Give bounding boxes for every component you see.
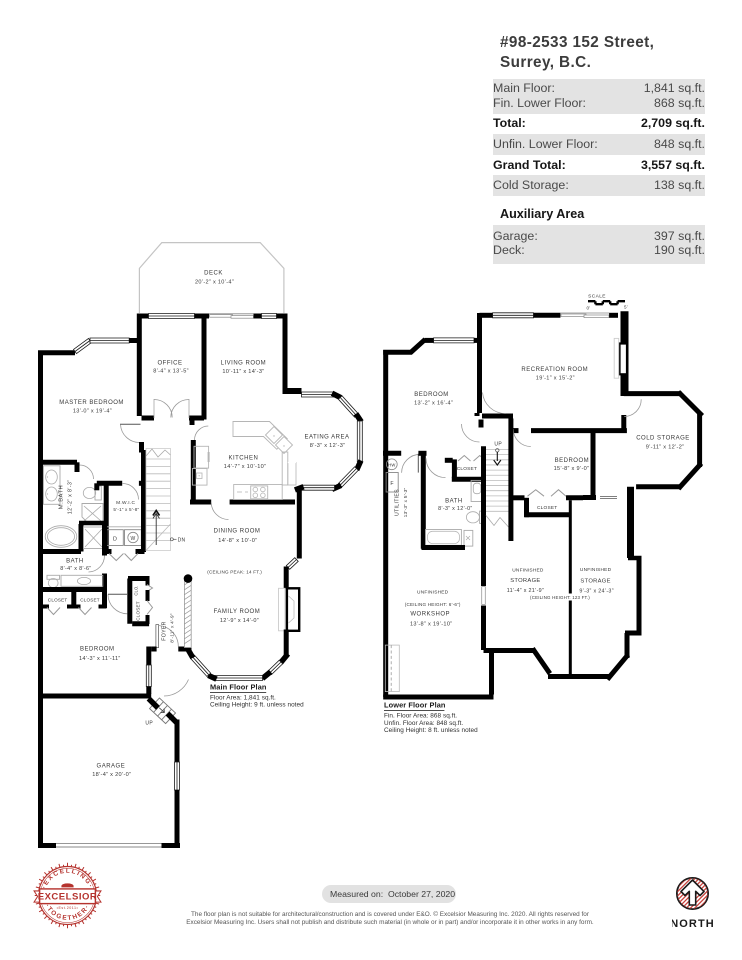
svg-text:(CEILING PEAK: 14 FT.): (CEILING PEAK: 14 FT.) [207,570,262,575]
svg-text:BEDROOM: BEDROOM [80,647,115,653]
svg-text:STORAGE: STORAGE [580,578,610,584]
svg-text:DECK: DECK [204,271,223,277]
svg-text:BATH: BATH [445,499,463,505]
svg-text:NORTH: NORTH [672,918,713,930]
svg-text:BEDROOM: BEDROOM [414,392,449,398]
svg-text:UNFINISHED: UNFINISHED [580,567,612,573]
svg-text:14’-7” x 10’-10”: 14’-7” x 10’-10” [224,464,266,470]
svg-text:20’-2” x 10’-4”: 20’-2” x 10’-4” [195,280,234,286]
svg-text:UP: UP [494,441,502,447]
svg-text:Fin. Floor Area: 868 sq.ft.: Fin. Floor Area: 868 sq.ft. [384,713,457,720]
svg-text:RECREATION ROOM: RECREATION ROOM [521,367,588,373]
svg-text:CLO.: CLO. [134,585,139,595]
svg-text:5’-1” x 5’-8”: 5’-1” x 5’-8” [113,507,139,512]
svg-text:10’-11” x 14’-3”: 10’-11” x 14’-3” [222,369,264,375]
svg-text:13’-0” x 19’-4”: 13’-0” x 19’-4” [73,408,112,414]
svg-text:CLOSET: CLOSET [457,466,477,472]
svg-text:UNFINISHED: UNFINISHED [512,567,544,573]
svg-text:COLD STORAGE: COLD STORAGE [636,436,690,442]
svg-text:M.BATH: M.BATH [59,485,65,509]
svg-text:12’-2” x 8’-3”: 12’-2” x 8’-3” [68,480,74,514]
svg-text:KITCHEN: KITCHEN [228,456,258,462]
svg-text:Ceiling Height: 8 ft. unless n: Ceiling Height: 8 ft. unless noted [384,727,478,734]
svg-text:SCALE: SCALE [588,294,606,300]
svg-text:Unfin. Floor Area: 848 sq.ft.: Unfin. Floor Area: 848 sq.ft. [384,720,463,727]
svg-text:WORKSHOP: WORKSHOP [410,612,450,618]
svg-text:8’-3” x 12’-3”: 8’-3” x 12’-3” [310,443,346,449]
svg-text:CLOSET: CLOSET [80,597,100,602]
svg-text:12’-9” x 14’-0”: 12’-9” x 14’-0” [220,618,259,624]
svg-text:14’-3” x 11’-11”: 14’-3” x 11’-11” [79,656,121,662]
svg-text:CLOSET: CLOSET [537,505,557,511]
svg-text:Lower Floor Plan: Lower Floor Plan [384,701,446,710]
svg-text:5’: 5’ [624,305,628,310]
svg-text:EXCELSIOR: EXCELSIOR [38,892,98,903]
svg-text:19’-1” x 15’-2”: 19’-1” x 15’-2” [536,375,575,381]
svg-text:9’-11” x 12’-2”: 9’-11” x 12’-2” [646,444,685,450]
svg-text:DINING ROOM: DINING ROOM [214,529,261,535]
svg-text:M.W.I.C: M.W.I.C [116,500,135,506]
svg-text:13’-8” x 19’-10”: 13’-8” x 19’-10” [410,621,452,627]
svg-text:EATING AREA: EATING AREA [304,435,349,441]
svg-text:11’-4” x 21’-9”: 11’-4” x 21’-9” [507,588,544,594]
svg-text:UTILITIES: UTILITIES [394,489,400,516]
svg-text:OFFICE: OFFICE [158,360,183,366]
svg-text:BATH: BATH [66,559,84,565]
svg-text:Main Floor Plan: Main Floor Plan [210,682,267,691]
svg-text:D: D [113,537,117,543]
svg-text:CLOSET: CLOSET [136,601,141,621]
svg-text:CLOSET: CLOSET [48,597,68,602]
svg-text:STORAGE: STORAGE [510,578,540,584]
svg-text:8’-3” x 12’-0”: 8’-3” x 12’-0” [438,506,472,512]
svg-text:UNFINISHED: UNFINISHED [417,589,449,595]
svg-text:18’-4” x 20’-0”: 18’-4” x 20’-0” [92,772,131,778]
svg-text:13’-3” x 5’-3”: 13’-3” x 5’-3” [403,487,409,517]
svg-text:FAMILY ROOM: FAMILY ROOM [214,609,261,615]
svg-text:LIVING ROOM: LIVING ROOM [221,361,267,367]
svg-text:15’-8” x 9’-0”: 15’-8” x 9’-0” [554,466,590,472]
svg-text:13’-2” x 16’-4”: 13’-2” x 16’-4” [414,400,453,406]
svg-text:(CEILING HEIGHT: 123 FT.): (CEILING HEIGHT: 123 FT.) [530,595,590,600]
svg-text:8’-4” x 8’-6”: 8’-4” x 8’-6” [60,566,91,572]
svg-text:GARAGE: GARAGE [97,764,126,770]
svg-text:BEDROOM: BEDROOM [555,458,590,464]
svg-text:DN: DN [178,538,186,544]
svg-text:F: F [390,481,393,487]
svg-text:8’-11” x 4’-9”: 8’-11” x 4’-9” [170,613,176,643]
svg-text:MASTER BEDROOM: MASTER BEDROOM [59,400,124,406]
svg-text:(CEILING HEIGHT: 6’-6”): (CEILING HEIGHT: 6’-6”) [405,602,461,607]
svg-text:14’-8” x 10’-0”: 14’-8” x 10’-0” [218,538,257,544]
svg-text:FOYER: FOYER [162,621,168,640]
svg-text:9’-3” x 24’-3”: 9’-3” x 24’-3” [579,588,613,594]
svg-text:W: W [131,536,136,542]
svg-text:8’-4” x 13’-5”: 8’-4” x 13’-5” [153,369,189,375]
svg-text:Ceiling Height: 9 ft. unless n: Ceiling Height: 9 ft. unless noted [210,701,304,708]
svg-text:0’: 0’ [587,306,591,311]
svg-text:HW: HW [388,462,395,467]
svg-text:UP: UP [145,721,153,727]
svg-text:•Est.2011•: •Est.2011• [57,906,79,910]
